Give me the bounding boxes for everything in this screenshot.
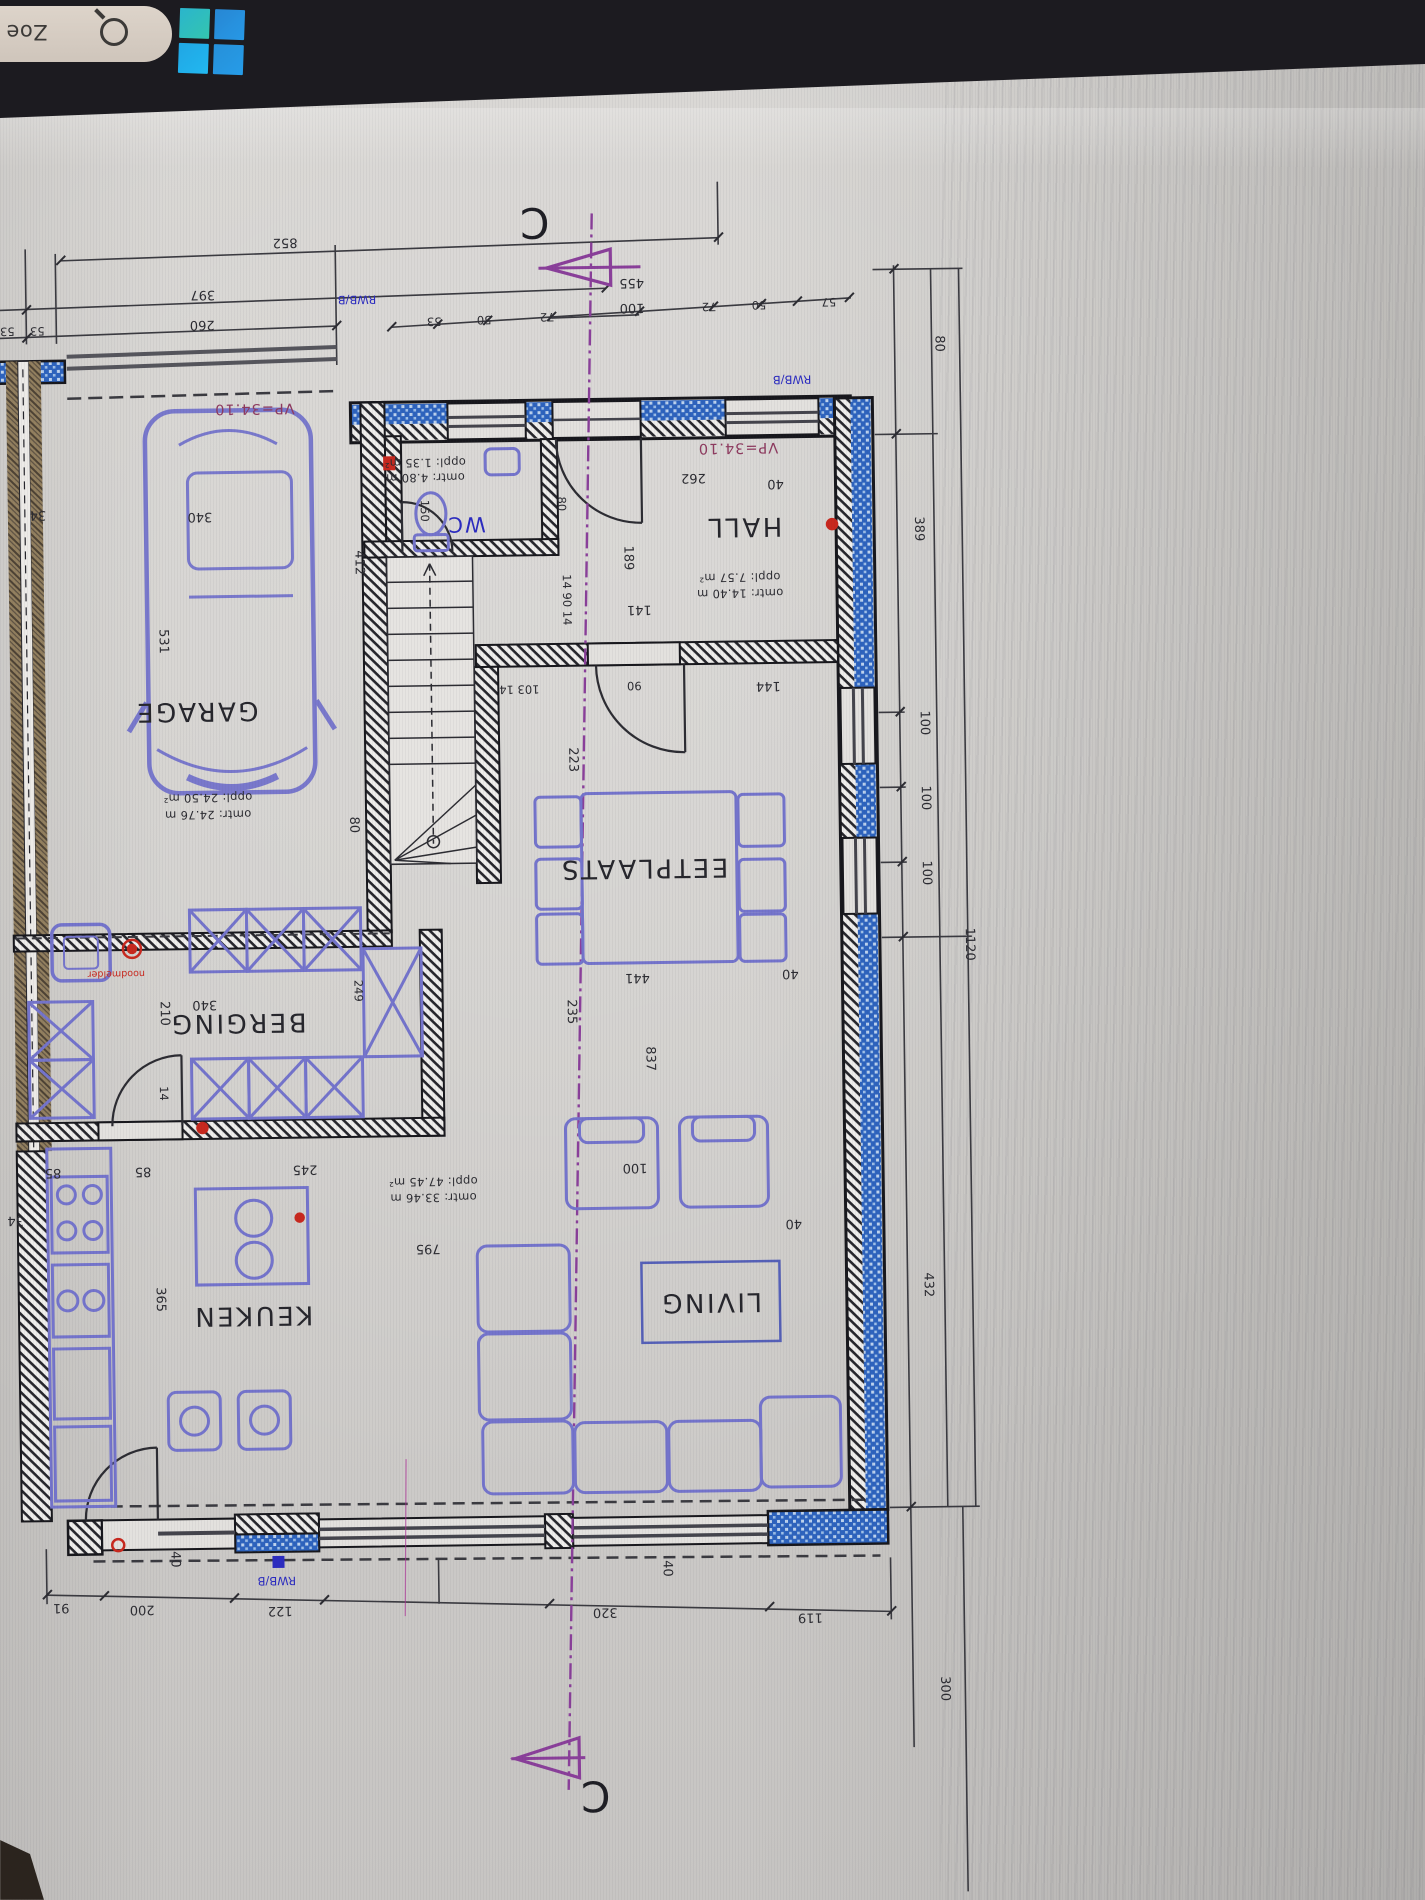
hall-area: oppl: 7.57 m² bbox=[699, 570, 781, 585]
dim-100t: 100 bbox=[620, 300, 645, 315]
vp-level-left: VP=34.10 bbox=[214, 400, 295, 417]
dim-40e: 40 bbox=[782, 966, 799, 981]
dim-262: 262 bbox=[681, 470, 706, 485]
dim-441: 441 bbox=[625, 970, 650, 985]
room-living: LIVING bbox=[660, 1286, 763, 1317]
dim-40bl: 40 bbox=[167, 1551, 182, 1568]
window-right-2 bbox=[842, 838, 877, 914]
dim-100r1: 100 bbox=[917, 710, 932, 735]
dim-40br: 40 bbox=[660, 1560, 675, 1577]
window-top-1 bbox=[447, 402, 525, 439]
dim-80s: 80 bbox=[346, 816, 361, 833]
dim-10314: 103 14 bbox=[499, 682, 539, 697]
dim-100r2: 100 bbox=[918, 785, 933, 810]
wall-bottom bbox=[68, 1495, 889, 1566]
dim-90: 90 bbox=[627, 679, 642, 693]
windows-logo-square bbox=[179, 8, 210, 39]
rwb-top-left: RWB/B bbox=[337, 292, 376, 307]
dim-1120: 1120 bbox=[962, 928, 977, 961]
dim-189: 189 bbox=[620, 545, 635, 570]
dim-40l: 40 bbox=[785, 1216, 802, 1231]
dim-397: 397 bbox=[190, 287, 215, 302]
dim-85b: 85 bbox=[135, 1164, 152, 1179]
dim-300: 300 bbox=[937, 1676, 952, 1701]
dim-122: 122 bbox=[268, 1603, 293, 1618]
dim-40h: 40 bbox=[767, 476, 784, 491]
dim-260: 260 bbox=[190, 317, 215, 332]
windows-logo-square bbox=[213, 44, 244, 75]
vp-level-right: VP=34.10 bbox=[698, 439, 779, 456]
stairs bbox=[386, 556, 476, 864]
search-icon bbox=[100, 18, 128, 46]
wall-top bbox=[350, 396, 851, 443]
dim-141: 141 bbox=[627, 602, 652, 617]
dim-852: 852 bbox=[273, 235, 298, 250]
dim-119: 119 bbox=[798, 1609, 823, 1624]
detector-label: noodmelder bbox=[88, 968, 145, 980]
room-wc: WC bbox=[446, 512, 486, 537]
door-bottom-opening bbox=[102, 1519, 235, 1551]
rwb-bottom: RWB/B bbox=[257, 1574, 296, 1589]
dim-365: 365 bbox=[153, 1287, 168, 1312]
window-bottom-1 bbox=[319, 1516, 545, 1547]
wall-right bbox=[834, 398, 888, 1510]
dim-200: 200 bbox=[130, 1602, 155, 1617]
dim-837: 837 bbox=[642, 1046, 657, 1071]
car bbox=[124, 409, 335, 794]
windows-logo-square bbox=[178, 43, 209, 74]
living-perimeter: omtr: 33.46 m bbox=[390, 1190, 477, 1205]
dim-80w: 80 bbox=[555, 496, 569, 511]
wall-garage-front bbox=[0, 347, 337, 400]
entrance-door-opening bbox=[552, 401, 640, 438]
floor-plan-svg: 852 397 53 53 260 455 100 53 50 72 72 50… bbox=[0, 0, 1425, 1900]
rwb-marker-square bbox=[272, 1556, 284, 1568]
dim-80r: 80 bbox=[931, 335, 946, 352]
window-bottom-2 bbox=[573, 1515, 768, 1546]
dim-57: 57 bbox=[822, 295, 837, 309]
dim-531: 531 bbox=[155, 629, 170, 654]
dim-144: 144 bbox=[756, 678, 781, 693]
dim-432: 432 bbox=[921, 1272, 936, 1297]
window-right-1 bbox=[840, 688, 875, 764]
dim-223: 223 bbox=[565, 747, 580, 772]
living-furniture bbox=[475, 1115, 841, 1494]
dim-389: 389 bbox=[911, 516, 926, 541]
photographed-screen: 852 397 53 53 260 455 100 53 50 72 72 50… bbox=[0, 0, 1425, 1900]
dim-85a: 85 bbox=[45, 1165, 62, 1180]
dim-795: 795 bbox=[416, 1241, 441, 1256]
dim-100r3: 100 bbox=[919, 860, 934, 885]
dim-34b: 34 bbox=[7, 1212, 24, 1227]
dim-14b: 14 bbox=[157, 1086, 171, 1101]
dim-72b: 72 bbox=[702, 300, 717, 314]
dimension-lines-top bbox=[0, 180, 852, 370]
plan-drawing: 852 397 53 53 260 455 100 53 50 72 72 50… bbox=[0, 178, 990, 1900]
section-letter-top: C bbox=[520, 198, 550, 247]
dim-72a: 72 bbox=[540, 310, 555, 324]
room-eetplaats: EETPLAATS bbox=[559, 852, 728, 884]
dim-245: 245 bbox=[293, 1161, 318, 1176]
taskbar-search[interactable]: Zoe bbox=[0, 6, 172, 62]
rwb-top-right: RWB/B bbox=[773, 372, 812, 387]
dim-53b: 53 bbox=[30, 324, 45, 338]
dim-91: 91 bbox=[53, 1600, 70, 1615]
dim-455: 455 bbox=[619, 275, 644, 290]
window-top-2 bbox=[725, 398, 818, 435]
windows-logo-square bbox=[214, 9, 245, 40]
dim-50a: 50 bbox=[477, 313, 492, 327]
dim-53c: 53 bbox=[427, 315, 442, 329]
room-garage: GARAGE bbox=[134, 695, 258, 727]
wc-area: oppl: 1.35 m² bbox=[384, 455, 466, 470]
dim-50b: 50 bbox=[752, 298, 767, 312]
living-area: oppl: 47.45 m² bbox=[389, 1174, 478, 1189]
dim-235: 235 bbox=[564, 999, 579, 1024]
wc-perimeter: omtr: 4.80 m bbox=[386, 470, 465, 485]
search-label: Zoe bbox=[6, 20, 48, 44]
dim-100l: 100 bbox=[623, 1160, 648, 1175]
room-hall: HALL bbox=[706, 511, 783, 542]
dim-150: 150 bbox=[418, 500, 432, 522]
garage-perimeter: omtr: 24.76 m bbox=[165, 807, 252, 822]
hall-perimeter: omtr: 14.40 m bbox=[697, 586, 784, 601]
dim-34a: 34 bbox=[29, 507, 46, 522]
dim-249: 249 bbox=[351, 980, 365, 1002]
dim-149014: 14 90 14 bbox=[560, 574, 575, 625]
room-berging: BERGING bbox=[169, 1007, 307, 1039]
dim-340g: 340 bbox=[187, 509, 212, 524]
room-keuken: KEUKEN bbox=[193, 1299, 314, 1331]
garage-area: oppl: 24.50 m² bbox=[163, 790, 252, 805]
dim-412: 412 bbox=[351, 550, 366, 575]
dim-53a: 53 bbox=[0, 325, 15, 339]
dim-320: 320 bbox=[593, 1604, 618, 1619]
windows-start-button[interactable] bbox=[177, 7, 245, 75]
section-letter-bottom: C bbox=[581, 1771, 611, 1820]
dimension-lines-right bbox=[872, 264, 985, 1892]
